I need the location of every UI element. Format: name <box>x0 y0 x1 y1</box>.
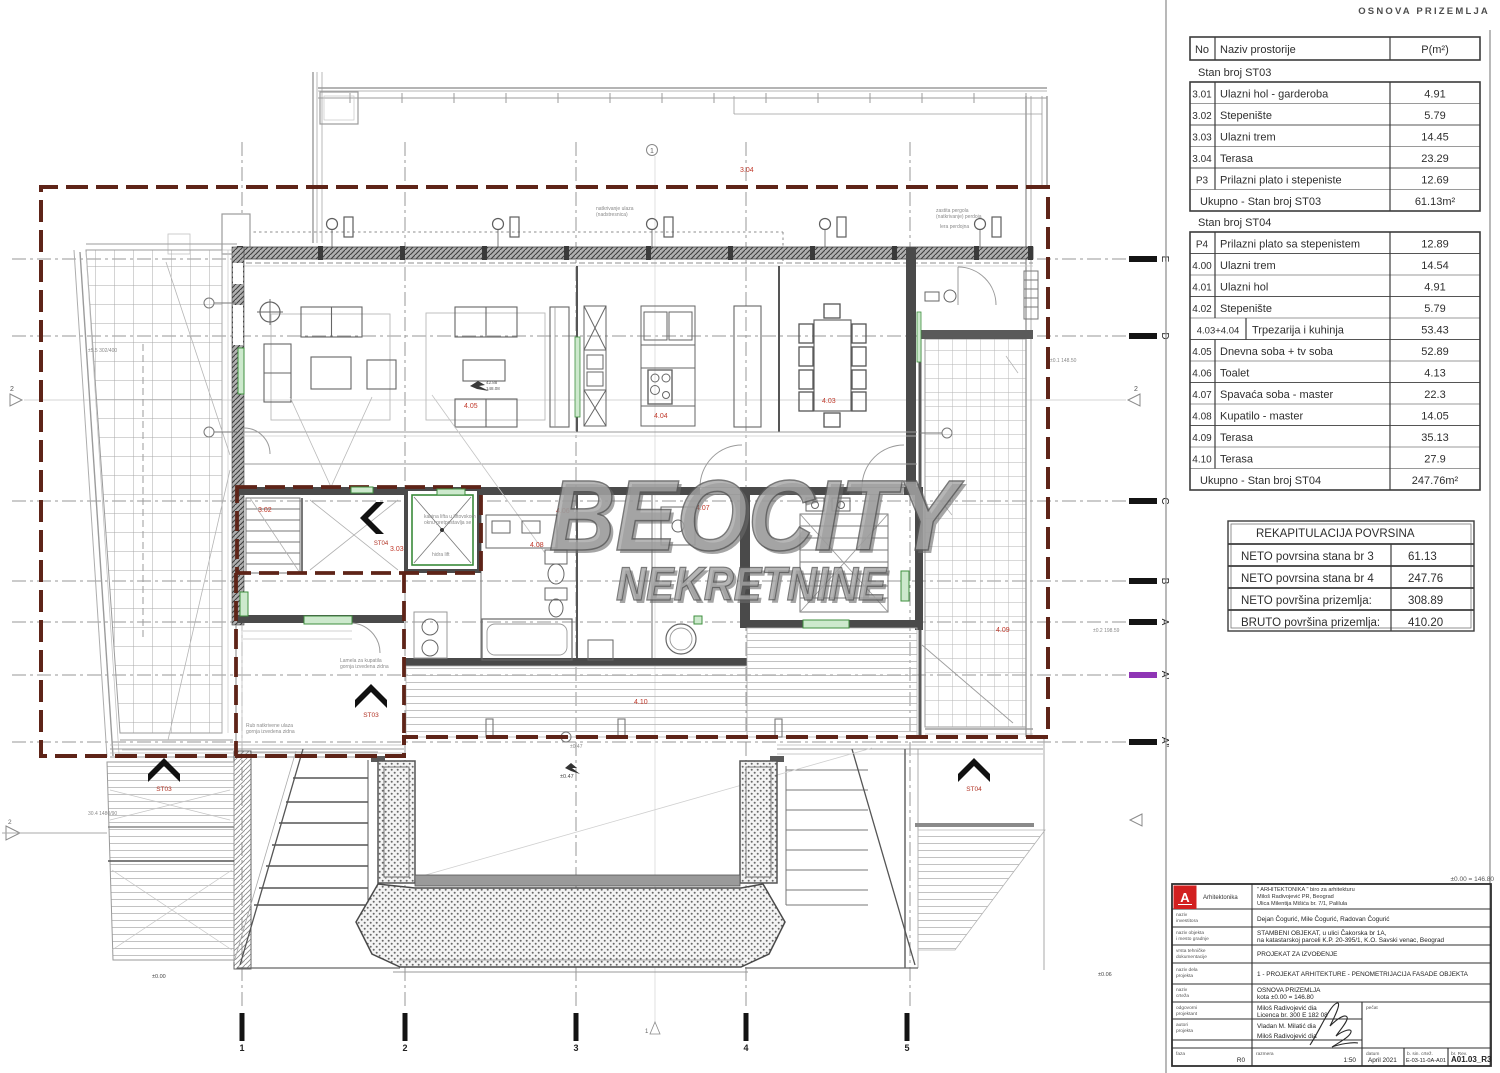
svg-text:5.79: 5.79 <box>1424 110 1445 122</box>
svg-text:No: No <box>1195 44 1209 56</box>
svg-text:Kupatilo - master: Kupatilo - master <box>1220 411 1303 423</box>
svg-text:4.06: 4.06 <box>1192 369 1212 380</box>
svg-text:P4: P4 <box>1196 240 1209 251</box>
svg-text:1 - PROJEKAT ARHITEKTURE - PEN: 1 - PROJEKAT ARHITEKTURE - PENOMETRIJACI… <box>1257 971 1469 978</box>
svg-text:1: 1 <box>650 148 654 155</box>
svg-text:4: 4 <box>743 1043 748 1053</box>
svg-text:Ulazni trem: Ulazni trem <box>1220 132 1276 144</box>
svg-text:4.08: 4.08 <box>1192 412 1212 423</box>
svg-text:4.07: 4.07 <box>1192 390 1212 401</box>
svg-text:NEKRETNINE: NEKRETNINE <box>616 557 887 610</box>
svg-text:oknu pretpostavlja se: oknu pretpostavlja se <box>424 520 471 526</box>
svg-text:Naziv prostorije: Naziv prostorije <box>1220 44 1296 56</box>
svg-text:i mesto gradnje: i mesto gradnje <box>1176 936 1209 942</box>
svg-text:Ulica Milentija Mišića br. 7/1: Ulica Milentija Mišića br. 7/1, Palilula <box>1257 901 1348 907</box>
svg-text:na katastarskoj parceli K.P. 2: na katastarskoj parceli K.P. 20-395/1, K… <box>1257 937 1445 944</box>
svg-text:PROJEKAT ZA IZVOĐENJE: PROJEKAT ZA IZVOĐENJE <box>1257 951 1337 958</box>
svg-text:E-03-11-0A-A01: E-03-11-0A-A01 <box>1406 1058 1446 1064</box>
svg-text:REKAPITULACIJA POVRSINA: REKAPITULACIJA POVRSINA <box>1256 528 1415 540</box>
svg-text:hidra lift: hidra lift <box>432 552 450 558</box>
svg-text:ST04: ST04 <box>374 541 389 547</box>
svg-text:247.76: 247.76 <box>1408 573 1443 585</box>
svg-text:53.43: 53.43 <box>1421 325 1449 337</box>
svg-text:crteža: crteža <box>1176 993 1189 999</box>
svg-text:Terasa: Terasa <box>1220 454 1254 466</box>
svg-text:ST03: ST03 <box>156 786 172 793</box>
svg-text:NETO povrsina stana br 3: NETO povrsina stana br 3 <box>1241 551 1374 563</box>
svg-text:BRUTO površina prizemlja:: BRUTO površina prizemlja: <box>1241 617 1380 629</box>
svg-text:22.3: 22.3 <box>1424 389 1445 401</box>
svg-text:(nadstresnica): (nadstresnica) <box>596 212 628 218</box>
svg-text:STAMBENI OBJEKAT, u ulici Čako: STAMBENI OBJEKAT, u ulici Čakorska br 1A… <box>1257 928 1387 937</box>
svg-text:Prilazni plato sa stepenistem: Prilazni plato sa stepenistem <box>1220 239 1360 251</box>
svg-text:±5.5 302/400: ±5.5 302/400 <box>88 348 117 354</box>
svg-text:Miloš Radivojević dia: Miloš Radivojević dia <box>1257 1005 1317 1012</box>
svg-text:Stepenište: Stepenište <box>1220 303 1272 315</box>
svg-text:B: B <box>1159 578 1170 585</box>
svg-text:3.03: 3.03 <box>390 546 404 553</box>
svg-text:A: A <box>1180 890 1190 905</box>
svg-text:kota ±0.00 = 146.80: kota ±0.00 = 146.80 <box>1257 994 1314 1001</box>
svg-text:308.89: 308.89 <box>1408 595 1443 607</box>
svg-text:Trpezarija i kuhinja: Trpezarija i kuhinja <box>1252 325 1345 337</box>
svg-text:2: 2 <box>1134 386 1138 393</box>
svg-text:Terasa: Terasa <box>1220 432 1254 444</box>
svg-text:OSNOVA PRIZEMLJA: OSNOVA PRIZEMLJA <box>1257 987 1321 994</box>
svg-text:Terasa: Terasa <box>1220 153 1254 165</box>
svg-text:42.88: 42.88 <box>486 380 498 385</box>
svg-text:C: C <box>1159 497 1170 504</box>
svg-text:A': A' <box>1159 671 1170 680</box>
svg-text:35.13: 35.13 <box>1421 432 1449 444</box>
svg-text:5.79: 5.79 <box>1424 303 1445 315</box>
svg-text:4.91: 4.91 <box>1424 89 1445 101</box>
svg-text:4.05: 4.05 <box>464 403 478 410</box>
svg-text:3.04: 3.04 <box>740 167 754 174</box>
svg-text:razmera: razmera <box>1256 1051 1274 1057</box>
svg-text:OSNOVA PRIZEMLJA: OSNOVA PRIZEMLJA <box>1358 6 1490 17</box>
svg-text:Stepenište: Stepenište <box>1220 110 1272 122</box>
svg-text:Ulazni hol - garderoba: Ulazni hol - garderoba <box>1220 89 1329 101</box>
svg-text:5: 5 <box>904 1043 909 1053</box>
svg-text:27.9: 27.9 <box>1424 454 1445 466</box>
svg-text:Miloš Radivojević PR, Beograd: Miloš Radivojević PR, Beograd <box>1257 894 1334 900</box>
svg-text:Vladan M. Milatić dia: Vladan M. Milatić dia <box>1257 1023 1316 1030</box>
svg-text:247.76m²: 247.76m² <box>1412 475 1459 487</box>
svg-text:1: 1 <box>239 1043 244 1053</box>
svg-text:4.00: 4.00 <box>1192 261 1212 272</box>
svg-text:4.08: 4.08 <box>530 542 544 549</box>
svg-text:2: 2 <box>402 1043 407 1053</box>
svg-text:Ulazni hol: Ulazni hol <box>1220 282 1268 294</box>
svg-text:±0.00: ±0.00 <box>152 974 166 980</box>
svg-text:Dnevna soba + tv soba: Dnevna soba + tv soba <box>1220 346 1334 358</box>
svg-text:2: 2 <box>10 386 14 393</box>
svg-text:Ukupno - Stan broj ST04: Ukupno - Stan broj ST04 <box>1200 475 1321 487</box>
svg-text:autori: autori <box>1176 1022 1188 1028</box>
svg-text:naziv: naziv <box>1176 987 1188 993</box>
svg-text:4.13: 4.13 <box>1424 368 1445 380</box>
svg-text:52.89: 52.89 <box>1421 346 1449 358</box>
svg-text:Miloš Radivojević dia: Miloš Radivojević dia <box>1257 1033 1317 1040</box>
svg-text:14.45: 14.45 <box>1421 132 1449 144</box>
svg-text:4.10: 4.10 <box>1192 455 1212 466</box>
svg-text:A01.03_R3: A01.03_R3 <box>1451 1055 1492 1064</box>
svg-text:3.03: 3.03 <box>1192 133 1212 144</box>
svg-text:lera perdojna: lera perdojna <box>940 224 969 230</box>
svg-text:4.09: 4.09 <box>996 627 1010 634</box>
svg-text:3.02: 3.02 <box>258 507 272 514</box>
svg-text:ST04: ST04 <box>966 786 982 793</box>
svg-text:4.02: 4.02 <box>1192 304 1212 315</box>
svg-text:12.89: 12.89 <box>1421 239 1449 251</box>
svg-text:3: 3 <box>573 1043 578 1053</box>
svg-text:April 2021: April 2021 <box>1368 1057 1397 1064</box>
svg-text:23.29: 23.29 <box>1421 153 1449 165</box>
svg-text:Licenca br. 300 E 182 08: Licenca br. 300 E 182 08 <box>1257 1012 1328 1019</box>
svg-text:projektant: projektant <box>1176 1011 1198 1017</box>
svg-text:ST03: ST03 <box>363 712 379 719</box>
svg-text:A": A" <box>1159 737 1170 748</box>
svg-text:1:50: 1:50 <box>1344 1057 1357 1064</box>
svg-text:naziv dela: naziv dela <box>1176 967 1198 973</box>
svg-text:Spavaća soba - master: Spavaća soba - master <box>1220 389 1333 401</box>
svg-text:investitora: investitora <box>1176 918 1198 924</box>
svg-text:Dejan Čogurić, Mile Čogurić, R: Dejan Čogurić, Mile Čogurić, Radovan Čog… <box>1257 914 1390 923</box>
svg-text:±0.47: ±0.47 <box>560 774 574 780</box>
svg-text:3.01: 3.01 <box>1192 90 1212 101</box>
svg-text:14.05: 14.05 <box>1421 411 1449 423</box>
svg-text:3.04: 3.04 <box>1192 154 1212 165</box>
svg-text:4.03: 4.03 <box>822 398 836 405</box>
svg-text:BEOCITY: BEOCITY <box>549 460 965 572</box>
svg-text:NETO povrsina stana br 4: NETO povrsina stana br 4 <box>1241 573 1374 585</box>
svg-text:NETO površina prizemlja:: NETO površina prizemlja: <box>1241 595 1372 607</box>
svg-text:naziv: naziv <box>1176 912 1188 918</box>
svg-text:12.69: 12.69 <box>1421 175 1449 187</box>
svg-text:4.04: 4.04 <box>654 413 668 420</box>
svg-text:A: A <box>1159 619 1170 626</box>
svg-text:2: 2 <box>8 819 12 826</box>
svg-text:14.54: 14.54 <box>1421 260 1449 272</box>
svg-text:naziv objekta: naziv objekta <box>1176 930 1204 936</box>
svg-text:projekta: projekta <box>1176 1028 1193 1034</box>
svg-text:148.08: 148.08 <box>486 386 500 391</box>
svg-text:" ARHITEKTONIKA " biro za arhi: " ARHITEKTONIKA " biro za arhitekturu <box>1257 887 1355 893</box>
svg-text:odgovorni: odgovorni <box>1176 1005 1197 1011</box>
svg-text:gornja izvedena zidna: gornja izvedena zidna <box>340 664 389 670</box>
svg-text:D: D <box>1159 332 1170 339</box>
svg-text:P(m²): P(m²) <box>1421 44 1449 56</box>
svg-text:(natkrivanje) perdoja: (natkrivanje) perdoja <box>936 214 982 220</box>
svg-text:dokumentacije: dokumentacije <box>1176 954 1207 960</box>
svg-text:faza: faza <box>1176 1051 1185 1057</box>
svg-text:Ulazni trem: Ulazni trem <box>1220 260 1276 272</box>
svg-text:R0: R0 <box>1237 1057 1246 1064</box>
svg-text:Prilazni plato i stepeniste: Prilazni plato i stepeniste <box>1220 175 1342 187</box>
svg-text:±0.2 198.59: ±0.2 198.59 <box>1093 628 1120 634</box>
svg-text:4.09: 4.09 <box>1192 433 1212 444</box>
svg-text:±0.1 148.50: ±0.1 148.50 <box>1050 358 1077 364</box>
svg-text:30.4 1480/90: 30.4 1480/90 <box>88 811 117 817</box>
svg-text:Stan broj ST03: Stan broj ST03 <box>1198 67 1271 79</box>
svg-text:61.13: 61.13 <box>1408 551 1437 563</box>
svg-text:pečat: pečat <box>1366 1005 1378 1011</box>
svg-text:b. sin. crtež.: b. sin. crtež. <box>1407 1051 1433 1057</box>
svg-text:vrsta tehničke: vrsta tehničke <box>1176 948 1206 954</box>
svg-text:4.01: 4.01 <box>1192 283 1212 294</box>
svg-text:4.10: 4.10 <box>634 699 648 706</box>
svg-text:410.20: 410.20 <box>1408 617 1443 629</box>
svg-text:Toalet: Toalet <box>1220 368 1249 380</box>
svg-text:gornja izvedena zidna: gornja izvedena zidna <box>246 729 295 735</box>
svg-text:±0.47: ±0.47 <box>570 744 583 750</box>
svg-text:E: E <box>1159 256 1170 263</box>
svg-text:projekta: projekta <box>1176 973 1193 979</box>
svg-text:4.05: 4.05 <box>1192 347 1212 358</box>
svg-text:4.91: 4.91 <box>1424 282 1445 294</box>
svg-text:P3: P3 <box>1196 176 1209 187</box>
svg-text:Ukupno - Stan broj ST03: Ukupno - Stan broj ST03 <box>1200 196 1321 208</box>
svg-text:Arhitektonika: Arhitektonika <box>1203 895 1238 901</box>
svg-text:Stan broj ST04: Stan broj ST04 <box>1198 217 1271 229</box>
svg-text:3.02: 3.02 <box>1192 111 1212 122</box>
svg-text:±0.06: ±0.06 <box>1098 972 1112 978</box>
svg-text:4.03+4.04: 4.03+4.04 <box>1197 326 1240 337</box>
svg-text:±0.00 = 146.80: ±0.00 = 146.80 <box>1450 876 1494 883</box>
svg-text:61.13m²: 61.13m² <box>1415 196 1456 208</box>
